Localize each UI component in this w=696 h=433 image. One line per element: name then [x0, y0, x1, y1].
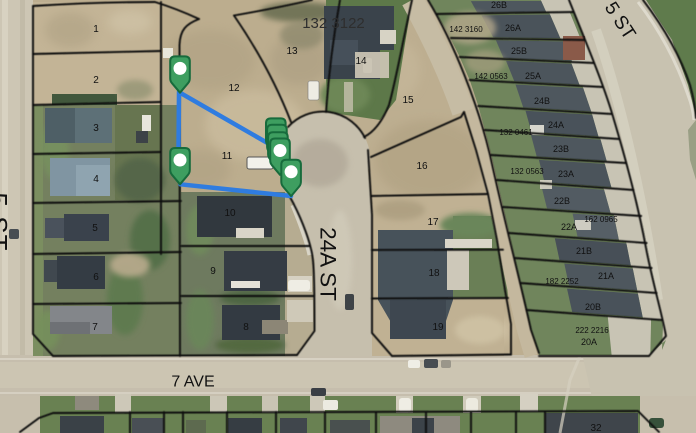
- svg-text:7 AVE: 7 AVE: [171, 374, 214, 391]
- svg-text:142 0563: 142 0563: [474, 72, 508, 81]
- svg-text:5 ST: 5 ST: [0, 193, 13, 252]
- svg-text:19: 19: [432, 322, 444, 333]
- svg-text:21A: 21A: [598, 271, 614, 281]
- svg-text:13: 13: [286, 46, 298, 57]
- svg-text:8: 8: [243, 322, 249, 333]
- svg-text:5: 5: [92, 223, 98, 234]
- svg-text:11: 11: [222, 151, 233, 162]
- svg-text:3: 3: [93, 123, 99, 134]
- svg-text:132 0563: 132 0563: [510, 167, 544, 176]
- svg-text:4: 4: [93, 174, 99, 185]
- svg-text:22A: 22A: [561, 222, 577, 232]
- svg-text:1: 1: [93, 24, 99, 35]
- svg-text:10: 10: [224, 208, 236, 219]
- svg-text:24A ST: 24A ST: [316, 227, 341, 301]
- svg-text:20B: 20B: [585, 302, 601, 312]
- svg-text:162 0965: 162 0965: [584, 215, 618, 224]
- svg-text:26A: 26A: [505, 23, 521, 33]
- svg-text:26B: 26B: [491, 0, 507, 10]
- svg-text:15: 15: [402, 95, 414, 106]
- svg-text:142 3160: 142 3160: [449, 25, 483, 34]
- svg-text:32: 32: [590, 423, 602, 433]
- svg-text:22B: 22B: [554, 196, 570, 206]
- svg-text:23B: 23B: [553, 144, 569, 154]
- svg-text:25B: 25B: [511, 46, 527, 56]
- svg-text:2: 2: [93, 75, 99, 86]
- svg-text:12: 12: [228, 83, 240, 94]
- svg-text:14: 14: [355, 56, 367, 67]
- svg-text:25A: 25A: [525, 71, 541, 81]
- svg-text:222 2216: 222 2216: [575, 326, 609, 335]
- svg-text:18: 18: [428, 268, 440, 279]
- svg-text:132 0461: 132 0461: [499, 128, 533, 137]
- svg-text:20A: 20A: [581, 337, 597, 347]
- svg-text:21B: 21B: [576, 246, 592, 256]
- svg-text:24B: 24B: [534, 96, 550, 106]
- svg-text:9: 9: [210, 266, 216, 277]
- svg-text:182 2252: 182 2252: [545, 277, 579, 286]
- svg-text:24A: 24A: [548, 120, 564, 130]
- svg-text:132 3122: 132 3122: [302, 15, 365, 32]
- svg-text:16: 16: [416, 161, 428, 172]
- svg-text:7: 7: [92, 322, 98, 333]
- svg-text:23A: 23A: [558, 169, 574, 179]
- svg-text:17: 17: [427, 217, 439, 228]
- svg-text:6: 6: [93, 272, 99, 283]
